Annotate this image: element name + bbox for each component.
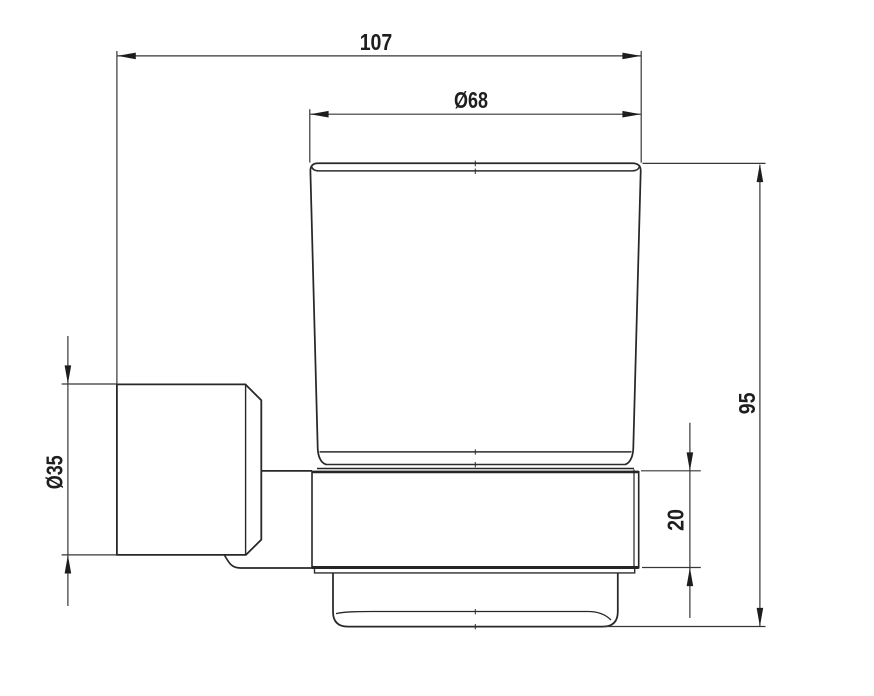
svg-text:107: 107 — [360, 30, 393, 56]
svg-text:20: 20 — [663, 509, 689, 531]
svg-text:95: 95 — [735, 392, 761, 414]
svg-text:Ø35: Ø35 — [42, 455, 68, 489]
svg-text:Ø68: Ø68 — [454, 88, 488, 114]
